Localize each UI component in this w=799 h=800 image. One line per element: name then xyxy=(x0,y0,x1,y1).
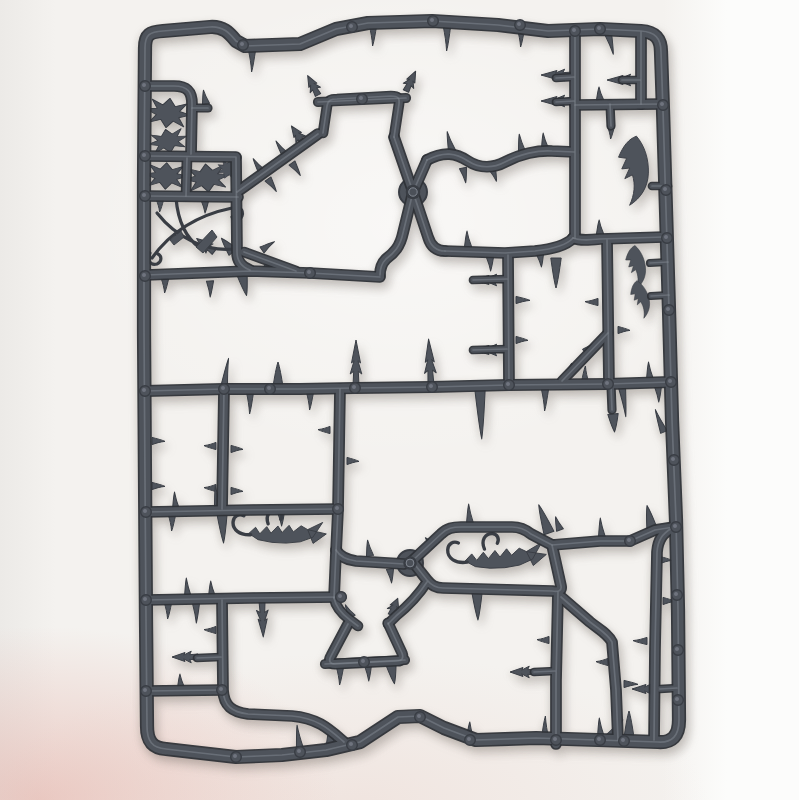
sprue-illustration xyxy=(0,0,799,800)
sprue-photo xyxy=(0,0,799,800)
